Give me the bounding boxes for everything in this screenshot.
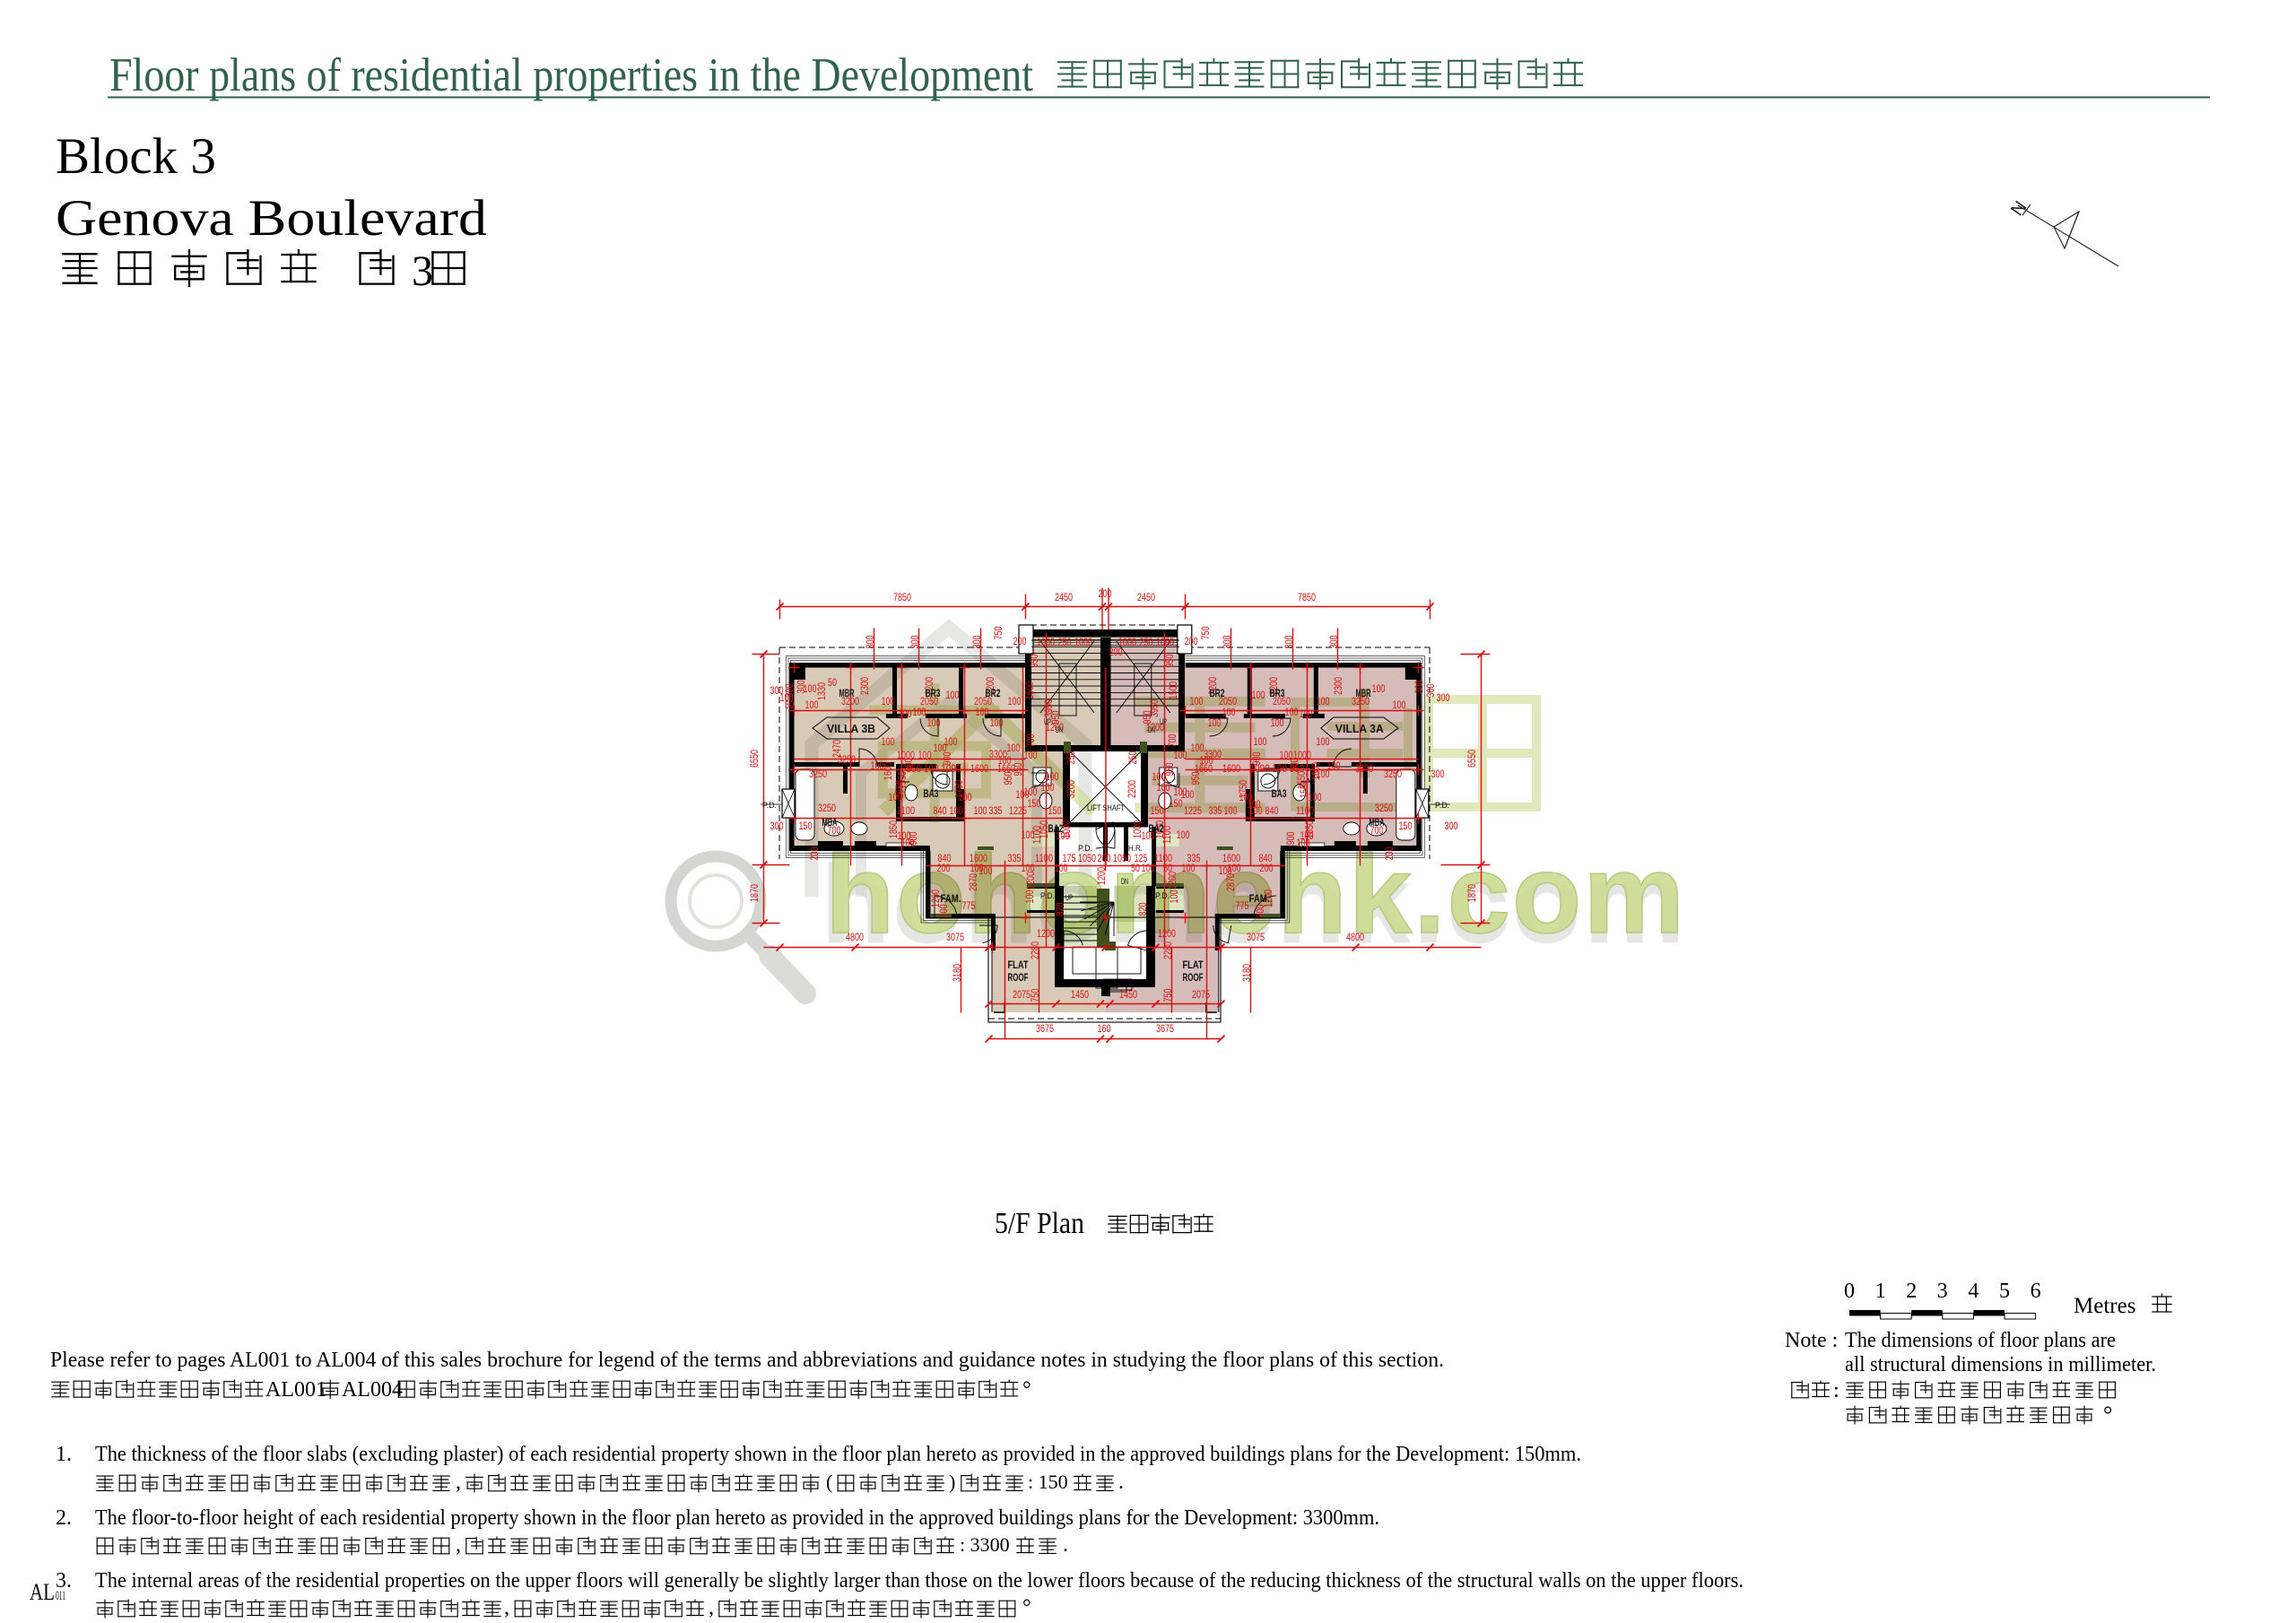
- svg-text:100: 100: [1007, 743, 1021, 754]
- svg-text:100: 100: [1152, 772, 1166, 783]
- svg-text:MBA: MBA: [1370, 818, 1385, 829]
- svg-text:100: 100: [1252, 690, 1265, 701]
- svg-text:100: 100: [1317, 737, 1330, 748]
- svg-text:7850: 7850: [1298, 593, 1316, 603]
- svg-text:1200: 1200: [1168, 872, 1178, 890]
- svg-text:300: 300: [1329, 636, 1340, 649]
- svg-text:100: 100: [990, 718, 1004, 729]
- svg-text:(: (: [826, 1471, 832, 1493]
- svg-text:1000: 1000: [1062, 820, 1073, 838]
- svg-text:100: 100: [998, 756, 1012, 767]
- svg-text:DN: DN: [1121, 877, 1128, 886]
- svg-text:1225: 1225: [1009, 806, 1027, 817]
- svg-text:100: 100: [1285, 707, 1299, 718]
- svg-text:3200: 3200: [1066, 780, 1077, 798]
- svg-text:100: 100: [1208, 718, 1222, 729]
- svg-text:°: °: [1022, 1378, 1031, 1402]
- svg-text:3250: 3250: [818, 803, 836, 814]
- svg-text:2450: 2450: [1137, 593, 1155, 603]
- svg-text:50: 50: [785, 700, 794, 711]
- svg-text:700: 700: [1168, 734, 1178, 748]
- svg-text:P.D.: P.D.: [762, 801, 777, 810]
- svg-text:011: 011: [56, 1589, 65, 1603]
- svg-text:The floor-to-floor height of e: The floor-to-floor height of each reside…: [95, 1506, 1379, 1530]
- svg-text:100: 100: [927, 718, 941, 729]
- svg-text:Genova Boulevard: Genova Boulevard: [56, 190, 487, 247]
- svg-text:N: N: [2007, 197, 2031, 219]
- svg-text:3075: 3075: [1247, 933, 1265, 943]
- svg-text:1100: 1100: [1035, 854, 1053, 864]
- svg-text:1: 1: [1875, 1280, 1886, 1303]
- svg-text:1500: 1500: [1025, 681, 1036, 699]
- svg-text:1870: 1870: [1467, 884, 1478, 902]
- svg-text:150: 150: [799, 821, 813, 832]
- svg-text:,: ,: [709, 1596, 714, 1619]
- svg-text:3180: 3180: [1242, 964, 1253, 982]
- svg-text:2075: 2075: [1013, 990, 1031, 1001]
- svg-text:Note :: Note :: [1785, 1329, 1838, 1352]
- svg-text:The dimensions of floor plans: The dimensions of floor plans are: [1845, 1329, 2116, 1352]
- svg-text:100: 100: [913, 707, 926, 718]
- svg-text:2450: 2450: [1055, 593, 1073, 603]
- svg-text:FLAT: FLAT: [1008, 960, 1029, 971]
- svg-text:4: 4: [1968, 1280, 1979, 1303]
- svg-text:300: 300: [1445, 821, 1458, 832]
- svg-text:1450: 1450: [1071, 990, 1089, 1001]
- svg-text:Please refer to pages AL001 to: Please refer to pages AL001 to AL004 of …: [50, 1348, 1444, 1372]
- svg-text:950: 950: [1165, 763, 1176, 777]
- svg-text:100: 100: [1025, 890, 1036, 904]
- svg-text:1330: 1330: [817, 682, 828, 700]
- svg-text:LIFT SHAFT: LIFT SHAFT: [1087, 803, 1125, 812]
- svg-text:FAM.: FAM.: [1249, 894, 1270, 905]
- svg-text:100: 100: [1372, 684, 1386, 695]
- svg-text:100: 100: [1041, 783, 1055, 794]
- svg-text:all structural dimensions in m: all structural dimensions in millimeter.: [1845, 1353, 2156, 1376]
- svg-text:100: 100: [1181, 790, 1195, 801]
- svg-text:100: 100: [979, 866, 993, 877]
- svg-text:3250: 3250: [838, 755, 856, 766]
- svg-text:ROOF: ROOF: [1183, 973, 1204, 984]
- svg-text:100: 100: [1190, 697, 1204, 707]
- svg-text:100: 100: [946, 690, 960, 701]
- svg-text:VILLA 3A: VILLA 3A: [1335, 722, 1385, 735]
- svg-text:1200: 1200: [1097, 867, 1108, 885]
- svg-text:ROOF: ROOF: [1008, 973, 1029, 984]
- svg-text:100: 100: [950, 806, 963, 817]
- svg-text:DN: DN: [1056, 725, 1063, 734]
- svg-text:1200: 1200: [1037, 929, 1055, 940]
- svg-text:1600: 1600: [1311, 762, 1322, 780]
- svg-text:MBA: MBA: [822, 818, 838, 829]
- svg-text:100: 100: [974, 806, 987, 817]
- svg-text:3675: 3675: [1036, 1024, 1054, 1035]
- svg-text:H.R.: H.R.: [1128, 844, 1143, 853]
- svg-text:Metres: Metres: [2074, 1294, 2135, 1318]
- svg-text:DN: DN: [1148, 725, 1155, 734]
- svg-text:The thickness of the floor sla: The thickness of the floor slabs (exclud…: [95, 1443, 1581, 1466]
- svg-text:100: 100: [1219, 866, 1232, 877]
- svg-text:950: 950: [1004, 772, 1014, 785]
- svg-text:4800: 4800: [846, 933, 864, 943]
- svg-text:UP: UP: [1044, 717, 1051, 726]
- svg-text:BR3: BR3: [1270, 689, 1285, 699]
- svg-text:4800: 4800: [1346, 933, 1364, 943]
- svg-text:FLAT: FLAT: [1183, 960, 1204, 971]
- svg-text:100: 100: [1224, 806, 1238, 817]
- svg-text:200: 200: [1099, 589, 1112, 600]
- svg-text:1000: 1000: [1037, 638, 1055, 648]
- svg-text:100: 100: [1046, 772, 1059, 783]
- svg-text:100: 100: [1182, 864, 1196, 874]
- svg-text:150: 150: [1028, 799, 1041, 810]
- svg-text:950: 950: [1165, 655, 1176, 668]
- svg-text:6550: 6550: [750, 750, 761, 768]
- svg-text:200: 200: [1385, 847, 1396, 861]
- svg-text:160: 160: [1098, 1024, 1111, 1035]
- svg-text:100: 100: [1239, 793, 1253, 803]
- svg-text:1450: 1450: [1119, 990, 1137, 1001]
- svg-text:): ): [949, 1471, 955, 1493]
- svg-text:900: 900: [943, 752, 953, 766]
- svg-text:Floor plans of residential pro: Floor plans of residential properties in…: [109, 49, 1033, 101]
- svg-text:1000: 1000: [897, 751, 915, 761]
- svg-text:200: 200: [810, 847, 821, 861]
- svg-text:50: 50: [1131, 864, 1140, 874]
- svg-text:50: 50: [828, 678, 837, 689]
- svg-text:MBR: MBR: [839, 689, 855, 699]
- svg-text:100: 100: [1200, 756, 1213, 767]
- svg-text:300: 300: [1426, 684, 1437, 698]
- svg-text:The internal areas of the resi: The internal areas of the residential pr…: [95, 1569, 1744, 1593]
- svg-text:775: 775: [962, 901, 976, 912]
- svg-text:3: 3: [1937, 1280, 1948, 1303]
- svg-text:300: 300: [1437, 693, 1450, 704]
- svg-text:Block 3: Block 3: [56, 128, 216, 185]
- svg-text:AL004: AL004: [342, 1378, 403, 1402]
- svg-text:750: 750: [1031, 989, 1041, 1002]
- svg-text:300: 300: [910, 636, 921, 649]
- svg-text:100: 100: [1157, 783, 1170, 794]
- svg-text:3250: 3250: [809, 769, 827, 780]
- svg-text:2200: 2200: [1127, 780, 1138, 798]
- svg-text:750: 750: [994, 627, 1004, 640]
- svg-text:100: 100: [882, 737, 895, 748]
- svg-text:1050: 1050: [1113, 854, 1131, 864]
- svg-text:100: 100: [1393, 700, 1406, 711]
- svg-text:3075: 3075: [946, 933, 964, 943]
- svg-text:100: 100: [918, 751, 932, 761]
- svg-text:335: 335: [989, 806, 1003, 817]
- svg-text:1100: 1100: [1162, 826, 1173, 844]
- svg-text:300: 300: [770, 821, 784, 832]
- svg-text:1600: 1600: [1222, 764, 1240, 775]
- svg-text:6550: 6550: [1467, 750, 1478, 768]
- svg-text:250: 250: [1058, 638, 1072, 648]
- svg-text:5: 5: [1999, 1280, 2010, 1303]
- svg-text:FAM.: FAM.: [941, 894, 961, 905]
- svg-text:100: 100: [1016, 790, 1030, 801]
- svg-text:1600: 1600: [970, 764, 988, 775]
- svg-text:100: 100: [804, 684, 817, 695]
- svg-text:1500: 1500: [1169, 681, 1179, 699]
- svg-text:1.: 1.: [56, 1443, 72, 1466]
- svg-text:,: ,: [456, 1471, 461, 1494]
- svg-text:6: 6: [2031, 1280, 2041, 1303]
- svg-text:1200: 1200: [1158, 929, 1176, 940]
- svg-text:BR2: BR2: [986, 689, 1001, 699]
- svg-text:200: 200: [1098, 854, 1111, 864]
- svg-text:250: 250: [1140, 638, 1153, 648]
- svg-text:UP: UP: [1065, 893, 1073, 902]
- svg-text:200: 200: [937, 864, 951, 874]
- svg-text:335: 335: [1008, 854, 1022, 864]
- svg-text:.: .: [1118, 1471, 1124, 1494]
- svg-text:150: 150: [1048, 806, 1062, 817]
- svg-text:100: 100: [1024, 751, 1038, 761]
- svg-text:100: 100: [976, 707, 989, 718]
- svg-text:1100: 1100: [897, 806, 915, 817]
- svg-text:0: 0: [1844, 1280, 1855, 1303]
- svg-text:3: 3: [412, 247, 433, 295]
- svg-text:150: 150: [1151, 806, 1164, 817]
- svg-text:300: 300: [1431, 769, 1445, 780]
- svg-text:P.D.: P.D.: [1435, 801, 1449, 810]
- svg-text:BR3: BR3: [926, 689, 941, 699]
- svg-text:200: 200: [1256, 905, 1266, 918]
- svg-text:300: 300: [1414, 681, 1425, 694]
- svg-text:BA3: BA3: [924, 789, 939, 800]
- svg-text:1870: 1870: [750, 884, 761, 902]
- svg-text:1000: 1000: [1156, 638, 1174, 648]
- svg-text::: :: [1833, 1379, 1839, 1402]
- svg-text:2.: 2.: [56, 1506, 72, 1530]
- svg-text:P.D.: P.D.: [1040, 891, 1055, 900]
- svg-text:200: 200: [1260, 864, 1274, 874]
- svg-text:°: °: [2103, 1402, 2112, 1428]
- svg-text:1000: 1000: [1293, 751, 1311, 761]
- svg-text:3250: 3250: [1375, 803, 1393, 814]
- svg-text:1550: 1550: [895, 780, 906, 798]
- svg-text:100: 100: [1254, 737, 1267, 748]
- svg-text:250: 250: [1066, 751, 1077, 765]
- svg-text:840: 840: [1265, 806, 1279, 817]
- svg-text:2075: 2075: [1192, 990, 1210, 1001]
- svg-text:2: 2: [1906, 1280, 1917, 1303]
- svg-text:150: 150: [1399, 821, 1413, 832]
- svg-text:200: 200: [1109, 647, 1123, 658]
- svg-text:200: 200: [1013, 637, 1027, 647]
- svg-text:P.D.: P.D.: [1078, 844, 1092, 853]
- svg-text:335: 335: [1209, 806, 1222, 817]
- svg-text:1000: 1000: [1074, 638, 1092, 648]
- svg-text:1100: 1100: [1296, 806, 1314, 817]
- svg-text:700: 700: [1026, 734, 1037, 748]
- svg-text:7850: 7850: [893, 593, 911, 603]
- svg-text:5/F Plan: 5/F Plan: [995, 1207, 1084, 1240]
- svg-text:950: 950: [1030, 655, 1040, 668]
- svg-text:100: 100: [1297, 838, 1310, 849]
- svg-text:300: 300: [865, 636, 876, 649]
- svg-text:100: 100: [1317, 697, 1330, 707]
- svg-text:°: °: [1022, 1596, 1031, 1619]
- svg-text:BA3: BA3: [1272, 789, 1287, 800]
- svg-text:1550: 1550: [1300, 780, 1310, 798]
- svg-text:100: 100: [1055, 864, 1068, 874]
- svg-text:,: ,: [456, 1533, 461, 1557]
- svg-text:100: 100: [1142, 864, 1155, 874]
- svg-text:,: ,: [504, 1596, 509, 1619]
- svg-text:3180: 3180: [952, 964, 963, 982]
- svg-text:1100: 1100: [1032, 826, 1043, 844]
- svg-text:1000: 1000: [1133, 820, 1144, 838]
- svg-text:1200: 1200: [1026, 872, 1037, 890]
- svg-text:100: 100: [1170, 890, 1180, 904]
- svg-text:300: 300: [1284, 636, 1295, 649]
- svg-text:750: 750: [1201, 627, 1212, 640]
- svg-text:100: 100: [1191, 743, 1205, 754]
- svg-text:100: 100: [959, 793, 972, 803]
- svg-text:250: 250: [1128, 751, 1139, 765]
- svg-text:100: 100: [1177, 830, 1190, 841]
- svg-text:MBR: MBR: [1356, 689, 1371, 699]
- svg-text:300: 300: [972, 636, 983, 649]
- svg-text:.: .: [1063, 1533, 1068, 1557]
- svg-text:100: 100: [1222, 707, 1236, 718]
- svg-text:200: 200: [1185, 637, 1198, 647]
- svg-text:2280: 2280: [1163, 942, 1174, 959]
- svg-text:100: 100: [1174, 751, 1187, 761]
- svg-text:: 150: : 150: [1028, 1471, 1068, 1493]
- svg-text:3675: 3675: [1156, 1024, 1174, 1035]
- svg-text:2300: 2300: [860, 677, 871, 695]
- svg-text:: 3300: : 3300: [960, 1533, 1010, 1556]
- svg-text:3250: 3250: [1384, 769, 1402, 780]
- svg-text:950: 950: [1191, 772, 1202, 785]
- svg-text:900: 900: [1286, 832, 1297, 846]
- svg-text:P.D.: P.D.: [1155, 891, 1170, 900]
- svg-text:100: 100: [1327, 761, 1341, 772]
- svg-text:300: 300: [1222, 636, 1233, 649]
- svg-text:1225: 1225: [1184, 806, 1202, 817]
- svg-text:820: 820: [1056, 903, 1066, 916]
- svg-text:100: 100: [1008, 697, 1022, 707]
- svg-text:2870: 2870: [969, 873, 979, 891]
- svg-text:VILLA 3B: VILLA 3B: [827, 722, 875, 735]
- svg-text:100: 100: [1280, 751, 1293, 761]
- svg-text:AL001: AL001: [265, 1378, 326, 1402]
- svg-text:820: 820: [1138, 903, 1149, 916]
- svg-text:2280: 2280: [1031, 942, 1041, 959]
- svg-text:BR2: BR2: [1210, 689, 1225, 699]
- svg-text:100: 100: [882, 697, 895, 707]
- svg-text:100: 100: [944, 737, 958, 748]
- svg-text:840: 840: [934, 806, 947, 817]
- svg-text:2300: 2300: [1334, 677, 1344, 695]
- svg-text:AL: AL: [30, 1579, 55, 1605]
- svg-text:900: 900: [1252, 752, 1263, 766]
- svg-text:1600: 1600: [883, 762, 894, 780]
- svg-text:750: 750: [1163, 989, 1174, 1002]
- svg-text:100: 100: [901, 838, 915, 849]
- svg-text:100: 100: [1271, 718, 1284, 729]
- svg-text:100: 100: [805, 700, 819, 711]
- svg-text:UP: UP: [1160, 717, 1167, 726]
- svg-text:200: 200: [939, 905, 950, 918]
- svg-text:100: 100: [871, 761, 884, 772]
- svg-text:BA2: BA2: [1149, 824, 1164, 835]
- svg-text:1050: 1050: [1078, 854, 1096, 864]
- svg-text:BA2: BA2: [1048, 824, 1064, 835]
- svg-text:775: 775: [1236, 901, 1249, 912]
